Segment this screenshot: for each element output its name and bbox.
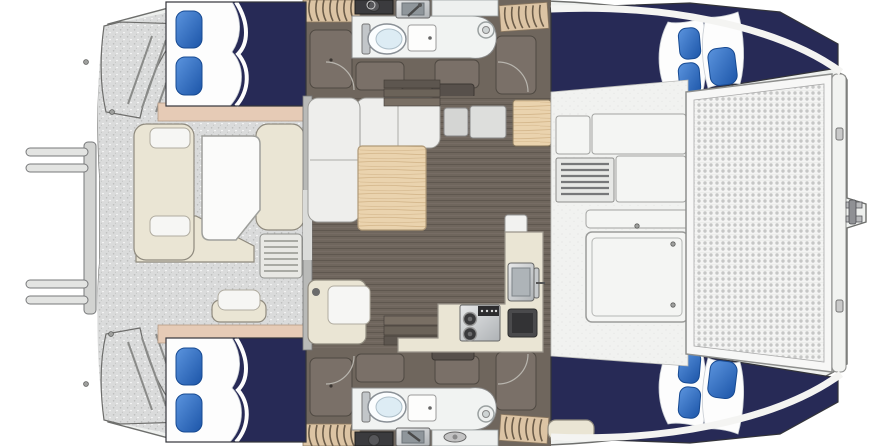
saloon-table: [358, 146, 426, 230]
cockpit-cushion: [150, 216, 190, 236]
helm-seat-cushion: [218, 290, 260, 310]
bed-pillow: [678, 386, 702, 419]
drain: [478, 406, 494, 422]
cabin-top-aft: [166, 2, 306, 106]
bed-pillow: [707, 46, 738, 86]
companionway-steps: [499, 2, 549, 31]
beam-fitting: [836, 300, 843, 312]
deck-screw: [84, 60, 89, 65]
deck-screw: [110, 110, 115, 115]
vanity-cabinet: [355, 432, 393, 446]
forward-cabinet: [470, 106, 506, 138]
drain: [478, 22, 494, 38]
saloon-steps: [384, 80, 440, 106]
deck-panel: [616, 156, 686, 202]
vanity-sink: [396, 428, 430, 446]
bed-pillow: [176, 57, 202, 95]
galley-pot: [444, 432, 466, 442]
deck-screw: [109, 332, 114, 337]
boarding-ladder: [26, 142, 96, 314]
companionway-steps: [499, 414, 549, 443]
companionway-steps: [303, 424, 360, 446]
bed-pillow: [707, 360, 738, 400]
bed-pillow: [678, 27, 702, 60]
deck-hatch: [586, 224, 688, 322]
toilet: [362, 24, 406, 54]
nav-seat: [308, 280, 370, 344]
icebox: [508, 309, 537, 337]
stove: [460, 305, 500, 341]
head-bottom: [352, 388, 498, 446]
shower-unit: [408, 25, 436, 51]
cockpit-bench-right: [256, 124, 304, 230]
trampoline-mesh: [694, 84, 824, 362]
toilet: [362, 392, 406, 422]
companionway-steps: [303, 0, 360, 22]
vanity-cabinet: [355, 0, 393, 14]
bed-pillow: [176, 348, 202, 385]
forward-cabinet: [444, 108, 468, 136]
head-top: [352, 0, 498, 58]
deck-panel: [592, 114, 686, 154]
deck-grate: [260, 234, 302, 278]
bed-pillow: [176, 394, 202, 432]
trampoline: [686, 74, 862, 372]
vanity-sink: [396, 0, 430, 18]
beam-fitting: [836, 128, 843, 140]
floorplan-drawing: [0, 0, 890, 446]
catamaran-floorplan: [0, 0, 890, 446]
cabin-bottom-aft: [166, 338, 306, 442]
shower-unit: [408, 395, 436, 421]
deck-panel: [556, 116, 590, 154]
deck-screw: [84, 382, 89, 387]
cockpit-cushion: [150, 128, 190, 148]
wood-cabinet: [513, 100, 551, 146]
louvered-vent: [556, 158, 614, 202]
bow-crossbeam: [832, 74, 846, 372]
bed-pillow: [176, 11, 202, 48]
